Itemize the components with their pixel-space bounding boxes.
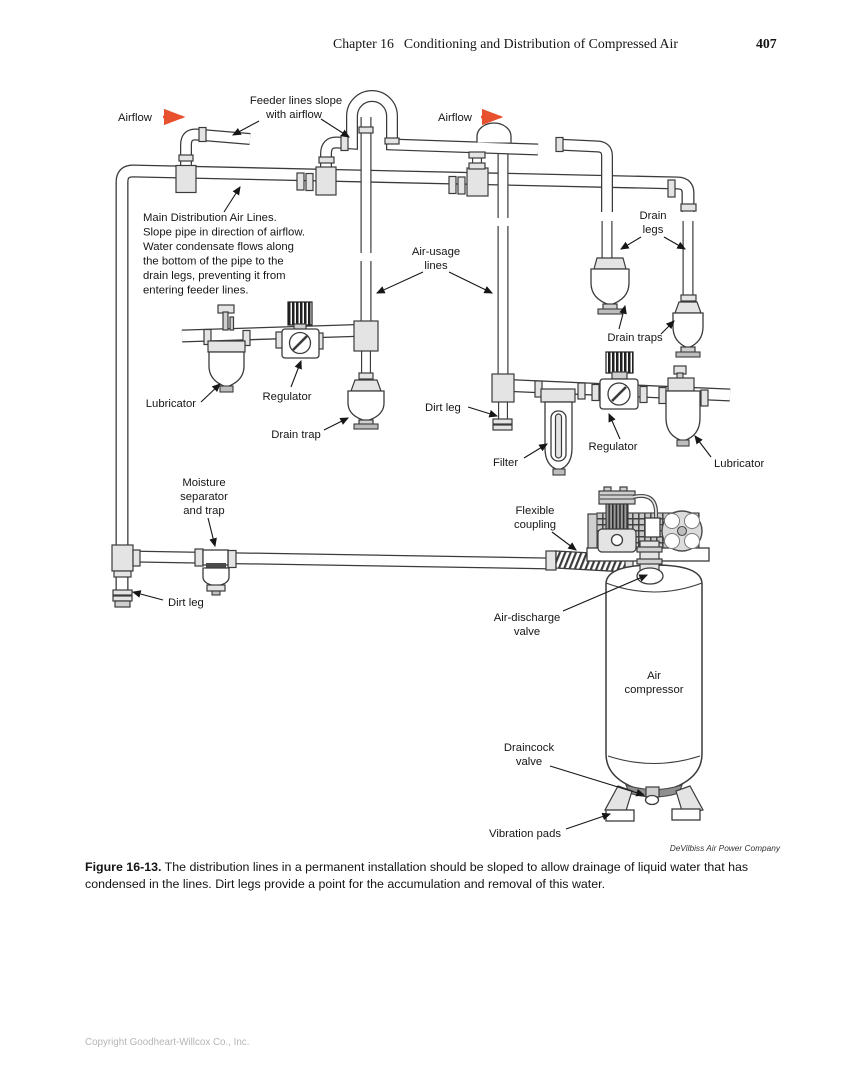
regulator-right-label: Regulator: [589, 441, 638, 453]
photo-credit: DeVilbiss Air Power Company: [670, 843, 781, 853]
flexible-coupling-label: coupling: [514, 519, 556, 531]
union-ring: [359, 127, 373, 133]
drain-legs-label: Drain: [640, 210, 667, 222]
fan-blade: [685, 514, 700, 529]
air-compressor-label: Air: [647, 670, 661, 682]
leader-lubricator-right: [695, 436, 711, 457]
figure-caption-label: Figure 16-13.: [85, 860, 161, 874]
union-ring: [546, 551, 556, 570]
leader-dirt-leg-left: [133, 592, 163, 600]
bowl-drain: [220, 386, 233, 392]
svg-text:entering feeder lines.: entering feeder lines.: [143, 285, 249, 297]
draincock-valve-part: [646, 787, 660, 805]
drain-legs-label: legs: [643, 224, 664, 236]
leader-lubricator-left: [201, 384, 220, 402]
bowl-flange: [668, 378, 694, 391]
leader-filter: [524, 444, 547, 458]
pipe-crossing-saddle: [477, 123, 511, 142]
drain-trap-b: [673, 302, 703, 357]
crankcase-sight-glass: [612, 535, 623, 546]
dirt-leg-left-label: Dirt leg: [168, 597, 204, 609]
pump-head: [599, 491, 635, 504]
tank-inlet-boss: [637, 568, 663, 584]
svg-text:Slope pipe in direction of air: Slope pipe in direction of airflow.: [143, 227, 305, 239]
vent-stem: [223, 312, 228, 330]
union-ring: [341, 136, 348, 151]
leader-regulator-left: [291, 361, 301, 387]
union-ring: [668, 180, 675, 197]
drain-trap-a: [591, 258, 629, 314]
airflow-left-label: Airflow: [118, 112, 153, 124]
piping-diagram: Airflow Airflow Feeder lines slope with …: [0, 0, 849, 1087]
union-ring: [701, 390, 708, 406]
vibration-pads-label: Vibration pads: [489, 828, 561, 840]
regulator-right-unit: [592, 352, 647, 409]
feeder-lines-label: with airflow: [265, 109, 323, 121]
valve-flange: [637, 559, 662, 564]
separator-cup: [203, 568, 229, 586]
union-ring: [228, 551, 236, 568]
lubricator-left-label: Lubricator: [146, 398, 196, 410]
fan-blade: [665, 534, 680, 549]
union-ring: [297, 173, 304, 190]
union-ring: [199, 128, 206, 142]
union-ring: [493, 425, 512, 430]
adjustment-knob: [288, 302, 312, 325]
knob-stem: [612, 372, 627, 379]
union-ring: [659, 388, 666, 404]
draincock-valve-label: Draincock: [504, 742, 555, 754]
lubricator-right-label: Lubricator: [714, 458, 764, 470]
separator-drain: [212, 591, 220, 595]
leader-regulator-right: [609, 414, 620, 439]
copyright-notice: Copyright Goodheart-Willcox Co., Inc.: [85, 1037, 249, 1048]
bottom-run-pipe: [131, 557, 551, 564]
vibration-pad: [672, 809, 700, 820]
union-ring: [133, 550, 140, 566]
filter-head: [541, 389, 575, 402]
lubricator-bowl: [209, 352, 244, 387]
end-cap: [115, 601, 130, 607]
union-ring: [469, 163, 485, 169]
lubricator-right-unit: [659, 366, 708, 446]
feeder-lines-label: Feeder lines slope: [250, 95, 342, 107]
separator-gasket: [206, 563, 226, 568]
tee-fitting: [492, 374, 514, 402]
tee-fitting: [112, 545, 133, 571]
union-ring: [113, 596, 132, 601]
vibration-pad: [606, 810, 634, 821]
union-ring: [114, 571, 131, 577]
air-usage-label: lines: [424, 260, 448, 272]
vent-stem: [230, 317, 234, 330]
union-ring: [195, 549, 203, 566]
regulator-left-label: Regulator: [263, 391, 312, 403]
separator-foot: [207, 585, 225, 591]
leader-vibration-pads: [566, 814, 610, 829]
flexible-coupling-label: Flexible: [516, 505, 555, 517]
union-ring: [592, 385, 599, 401]
air-compressor-label: compressor: [624, 684, 683, 696]
moisture-separator-label: and trap: [183, 505, 224, 517]
drain-trap-label: Drain trap: [271, 429, 321, 441]
lubricator-bowl: [666, 391, 700, 441]
pump-valve-block: [645, 518, 660, 537]
main-distribution-note: Main Distribution Air Lines. Slope pipe …: [143, 212, 305, 297]
valve-flange: [637, 547, 662, 552]
tee-fitting: [467, 168, 488, 196]
moisture-separator-label: Moisture: [182, 477, 225, 489]
svg-text:drain legs, preventing it from: drain legs, preventing it from: [143, 270, 286, 282]
leader-dirt-leg-right: [468, 407, 497, 416]
dirt-leg-right-label: Dirt leg: [425, 402, 461, 414]
air-compressor-assembly: [587, 487, 709, 821]
moisture-separator-label: separator: [180, 491, 228, 503]
union-ring: [681, 204, 696, 211]
tee-fitting: [316, 167, 336, 195]
bowl-flange: [208, 341, 245, 352]
union-ring: [578, 383, 585, 399]
union-ring: [458, 177, 465, 194]
air-usage-label: Air-usage: [412, 246, 460, 258]
fan-blade: [685, 534, 700, 549]
union-ring: [179, 155, 193, 161]
tee-fitting: [176, 166, 196, 193]
leader-drain-leg-a: [621, 237, 641, 249]
fan-blade: [665, 514, 680, 529]
airflow-right-label: Airflow: [438, 112, 473, 124]
bowl-drain: [677, 440, 689, 446]
separator-body: [203, 550, 228, 565]
union-ring: [319, 157, 334, 163]
union-ring: [385, 138, 399, 144]
leader-drain-trap-left: [324, 418, 348, 430]
filter-label: Filter: [493, 457, 518, 469]
leader-feeder-right: [321, 119, 349, 137]
filter-drain: [553, 469, 565, 475]
drain-trap-left-station: [348, 373, 384, 429]
fan-hub: [678, 527, 687, 536]
svg-text:Main Distribution Air Lines.: Main Distribution Air Lines.: [143, 212, 277, 224]
svg-text:the bottom of the pipe to the: the bottom of the pipe to the: [143, 256, 284, 268]
leader-drain-trap-b: [661, 321, 674, 334]
leader-air-usage-left: [377, 272, 423, 293]
figure-caption-text: The distribution lines in a permanent in…: [85, 860, 748, 891]
union-ring: [113, 590, 132, 595]
dirt-leg-bottom-left-fitting: [113, 590, 132, 607]
frl-right-fittings: [492, 374, 514, 430]
leader-main-note: [224, 187, 240, 212]
book-page: Chapter 16Conditioning and Distribution …: [0, 0, 849, 1087]
union-ring: [681, 295, 696, 301]
tee-fitting: [354, 321, 378, 351]
lubricator-left-unit: [204, 305, 250, 392]
adjustment-knob: [606, 352, 633, 373]
union-ring: [469, 152, 485, 158]
leader-drain-leg-b: [664, 237, 685, 249]
union-ring: [449, 177, 456, 194]
drain-traps-label: Drain traps: [607, 332, 663, 344]
moisture-separator-unit: [195, 549, 236, 595]
pump-cylinder-fins: [606, 504, 628, 531]
union-ring: [556, 138, 563, 152]
draincock-valve-label: valve: [516, 756, 542, 768]
svg-text:Water condensate flows along: Water condensate flows along: [143, 241, 294, 253]
air-discharge-valve-label: valve: [514, 626, 540, 638]
leader-moisture-separator: [208, 518, 215, 546]
union-ring: [306, 174, 313, 191]
regulator-left-unit: [276, 302, 323, 358]
filter-element-core: [556, 414, 562, 458]
figure-caption: Figure 16-13. The distribution lines in …: [85, 859, 793, 892]
leader-air-usage-right: [449, 272, 492, 293]
union-ring: [640, 387, 647, 403]
leader-flexible-coupling: [552, 532, 576, 550]
union-ring: [493, 419, 512, 424]
air-discharge-valve-label: Air-discharge: [494, 612, 561, 624]
filter-unit: [535, 381, 585, 475]
